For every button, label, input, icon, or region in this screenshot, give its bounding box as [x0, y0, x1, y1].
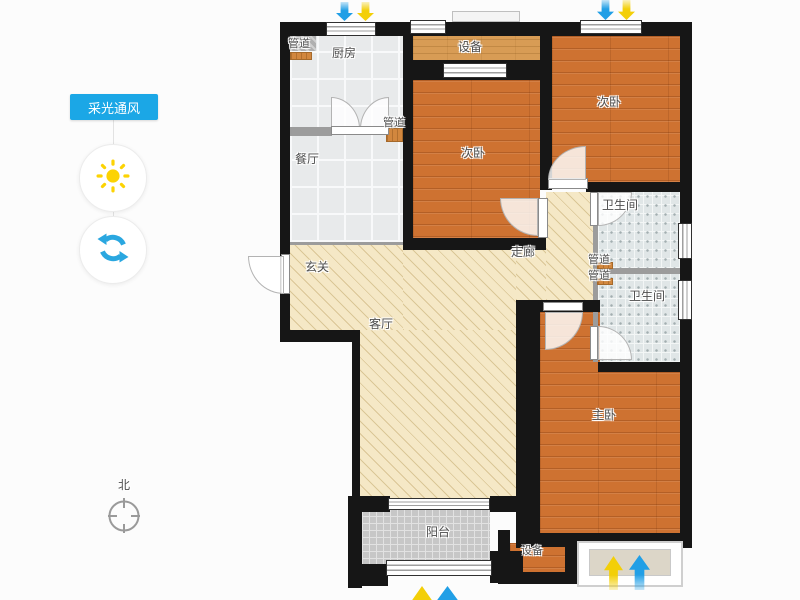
- window: [678, 223, 692, 259]
- master-door-leaf: [543, 302, 583, 311]
- room-label-corridor: 走廊: [511, 243, 535, 260]
- room-label-balcony: 阳台: [426, 523, 450, 540]
- window: [678, 280, 692, 320]
- wall-segment: [290, 242, 403, 245]
- airflow-up-arrow-blue: [437, 586, 458, 600]
- bedroom2-mid-door-leaf: [538, 198, 548, 238]
- airflow-down-arrow-blue: [336, 2, 353, 21]
- wall-segment: [348, 564, 388, 586]
- lighting-ventilation-tool-chip[interactable]: 采光通风: [70, 94, 158, 120]
- window: [326, 22, 376, 36]
- exterior-ledge: [452, 11, 520, 22]
- compass-north-label: 北: [118, 476, 130, 493]
- room-label-bedroom2: 次卧: [597, 93, 621, 110]
- hall-hatch-center: [403, 250, 516, 330]
- room-label-duct: 管道: [288, 35, 310, 51]
- window: [443, 63, 507, 78]
- wall-segment: [403, 22, 413, 250]
- room-label-bath: 卫生间: [629, 287, 665, 304]
- refresh-icon: [96, 231, 130, 270]
- wall-segment: [598, 362, 692, 372]
- floorplan-viewer: 采光通风: [0, 0, 800, 600]
- wall-segment: [280, 330, 360, 342]
- refresh-ventilation-tool-button[interactable]: [79, 216, 147, 284]
- compass-icon: [104, 496, 144, 541]
- sunlight-tool-button[interactable]: [79, 144, 147, 212]
- wall-segment: [290, 127, 332, 136]
- room-label-equipment: 设备: [521, 542, 543, 558]
- airflow-down-arrow-yellow: [357, 2, 374, 21]
- wall-segment: [565, 536, 577, 584]
- room-label-bath: 卫生间: [602, 196, 638, 213]
- window: [580, 20, 642, 34]
- wall-segment: [586, 182, 692, 192]
- window: [386, 560, 492, 576]
- room-label-duct: 管道: [588, 267, 610, 283]
- airflow-down-arrow-yellow: [618, 0, 635, 20]
- room-label-master: 主卧: [592, 406, 616, 423]
- wall-segment: [516, 300, 540, 548]
- wall-segment: [490, 496, 518, 512]
- room-label-equipment: 设备: [458, 38, 482, 55]
- wall-segment: [352, 332, 360, 512]
- airflow-down-arrow-blue: [597, 0, 614, 20]
- wall-segment: [540, 22, 552, 190]
- duct-block: [290, 52, 312, 60]
- room-label-kitchen: 厨房: [332, 44, 356, 61]
- room-label-bedroom2: 次卧: [461, 144, 485, 161]
- bath-lower-door-leaf: [590, 326, 598, 360]
- airflow-up-arrow-yellow: [412, 586, 432, 600]
- room-label-living: 客厅: [369, 315, 393, 332]
- bay-window-sill: [589, 549, 671, 576]
- hall-hatch-living: [360, 330, 516, 498]
- bath-upper-door-leaf: [590, 192, 598, 226]
- window: [410, 20, 446, 34]
- room-label-dining: 餐厅: [295, 150, 319, 167]
- room-label-duct: 管道: [383, 114, 405, 130]
- entry-door-swing: [248, 256, 284, 294]
- room-label-duct: 管道: [588, 251, 610, 267]
- room-label-foyer: 玄关: [305, 258, 329, 275]
- room-master-bedroom-floor-right: [598, 372, 680, 533]
- window: [388, 498, 490, 510]
- kitchen-door-sill: [331, 126, 389, 135]
- sun-icon: [95, 158, 131, 199]
